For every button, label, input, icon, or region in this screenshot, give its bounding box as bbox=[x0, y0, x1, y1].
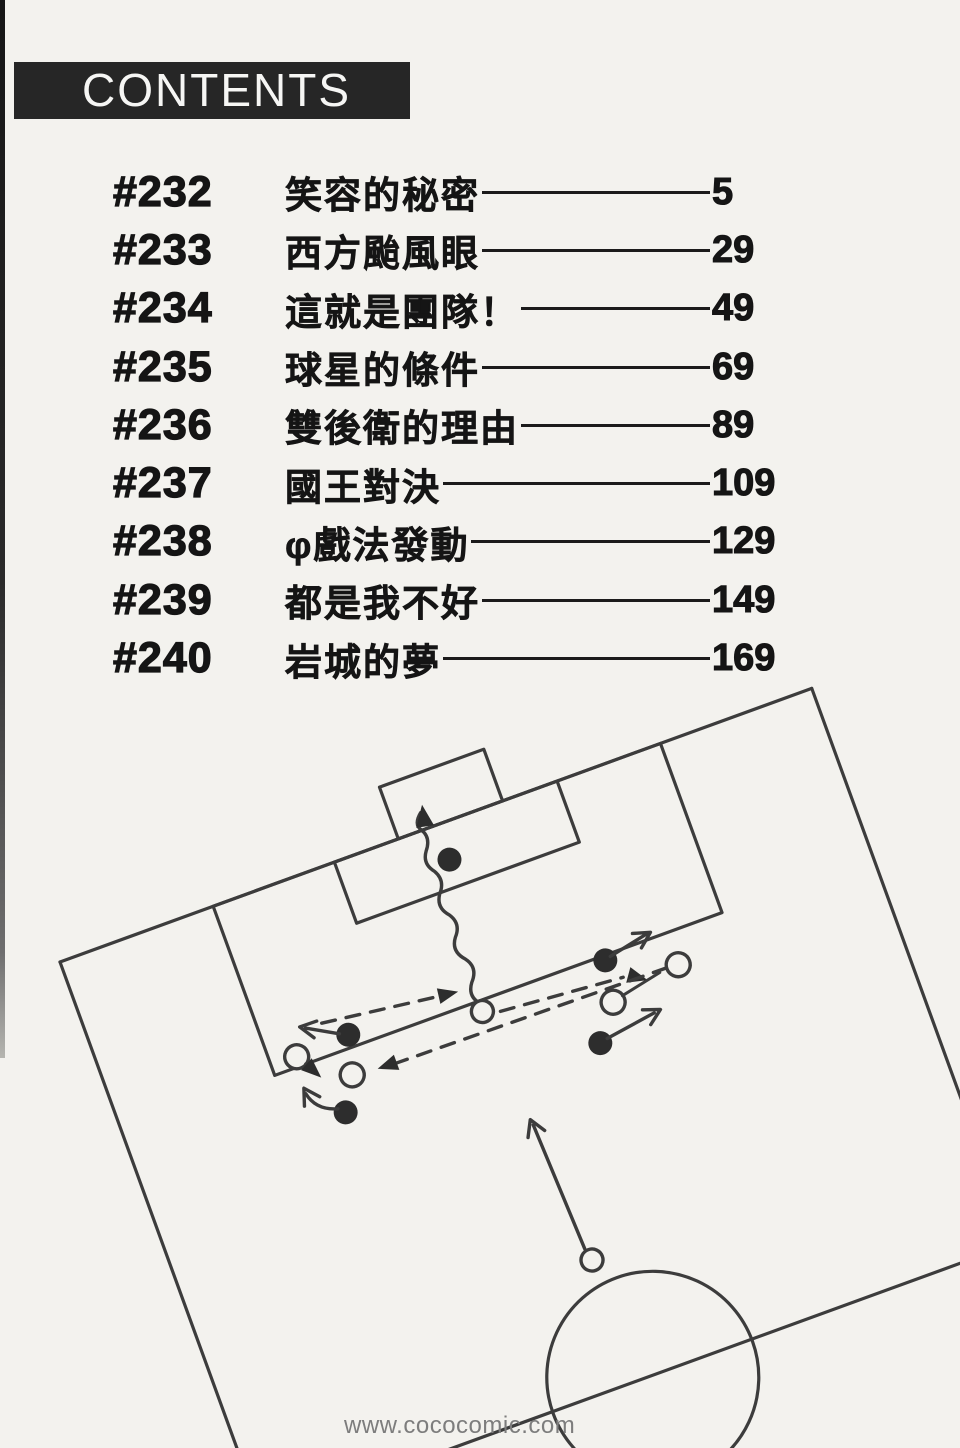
comic-contents-page: CONTENTS #232 笑容的秘密 5 #233 西方颱風眼 29 #234… bbox=[0, 0, 960, 1448]
goal-box bbox=[379, 749, 502, 839]
penalty-box bbox=[213, 743, 722, 1075]
tactics-diagram bbox=[0, 0, 960, 1448]
defender-dot-left-2 bbox=[330, 1097, 361, 1128]
defender-dot-right-2 bbox=[585, 1028, 616, 1059]
cross-pass-arrowhead bbox=[375, 1055, 399, 1077]
runner-arrow bbox=[533, 1123, 584, 1251]
dribble-wavy-line bbox=[407, 813, 489, 1006]
right-touchline bbox=[812, 688, 960, 1303]
attacker-circle-right-mid bbox=[598, 987, 629, 1018]
run-arrow-right-2 bbox=[604, 1013, 657, 1039]
curved-run-arrow-head bbox=[299, 1084, 321, 1106]
attacker-circle-right-wing bbox=[663, 949, 694, 980]
ball-carrier-circle bbox=[468, 997, 496, 1025]
pass-to-carrier-arrowhead bbox=[435, 982, 460, 1004]
left-touchline bbox=[60, 962, 246, 1448]
goalkeeper-dot bbox=[434, 844, 465, 875]
runner-circle bbox=[578, 1246, 606, 1274]
watermark: www.cococomic.com bbox=[344, 1412, 575, 1440]
attacker-circle-left-2 bbox=[337, 1059, 368, 1090]
